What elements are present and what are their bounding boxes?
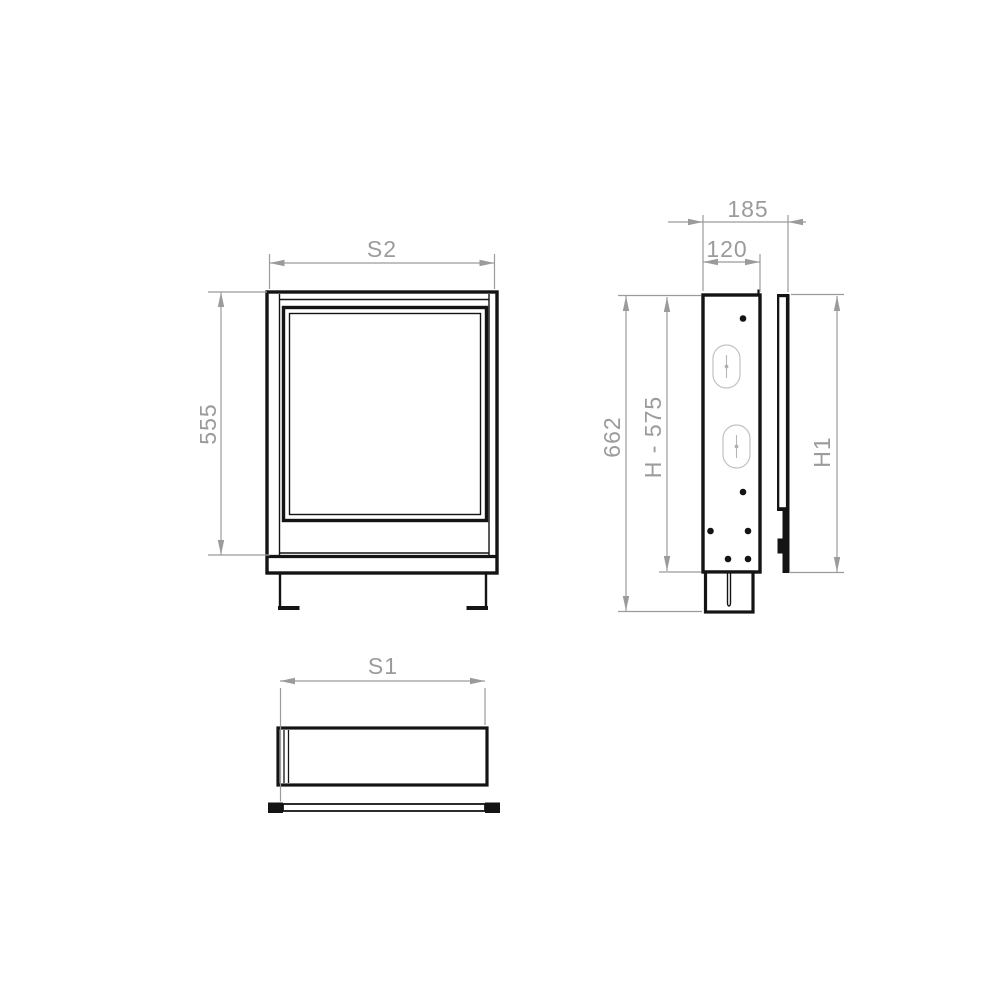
dim-label-top-width: S1 [368,653,398,679]
dim-label-side-height-total: 662 [599,416,625,457]
side-view: 185 120 662 H - 575 [599,196,844,612]
arrowhead [480,260,495,266]
arrowhead [623,296,629,311]
arrowhead [834,296,840,311]
hole [745,528,752,535]
arrowhead [280,678,295,684]
top-frame-bar-right-cap [485,803,500,814]
dim-side-height-body: H - 575 [640,297,701,572]
dim-side-height-frame: H1 [789,295,844,573]
dim-label-front-width: S2 [367,236,397,262]
front-outer-casing [267,292,497,573]
dim-label-front-height: 555 [195,403,221,444]
hole [725,556,732,563]
arrowhead [664,556,670,571]
dim-front-width: S2 [270,236,495,289]
slot-center-dot [735,445,739,449]
top-frame-bar-left-cap [268,803,283,814]
frame-profile-channel [779,297,786,507]
arrowhead [788,219,803,225]
hole [740,315,747,322]
arrowhead [688,219,703,225]
dim-front-height: 555 [195,292,270,555]
top-view: S1 [268,653,500,813]
dim-label-side-depth-body: 120 [706,236,747,262]
technical-drawing: S2 555 [0,0,1000,1000]
arrowhead [623,596,629,611]
dim-label-side-height-body: H - 575 [640,396,666,478]
top-body [278,728,487,785]
dim-label-side-height-frame: H1 [809,436,835,467]
hole [745,556,752,563]
drawing-page: S2 555 [0,0,1000,1000]
arrowhead [664,297,670,312]
arrowhead [218,292,224,307]
top-frame-bar [283,804,485,811]
dim-side-depth-body: 120 [703,236,760,292]
arrowhead [470,678,485,684]
dim-label-side-depth-total: 185 [727,196,768,222]
arrowhead [270,260,285,266]
hole [707,528,714,535]
arrowhead [218,540,224,555]
arrowhead [834,557,840,572]
front-view: S2 555 [195,236,497,608]
slot-center-dot [725,365,729,369]
hole [740,489,747,496]
